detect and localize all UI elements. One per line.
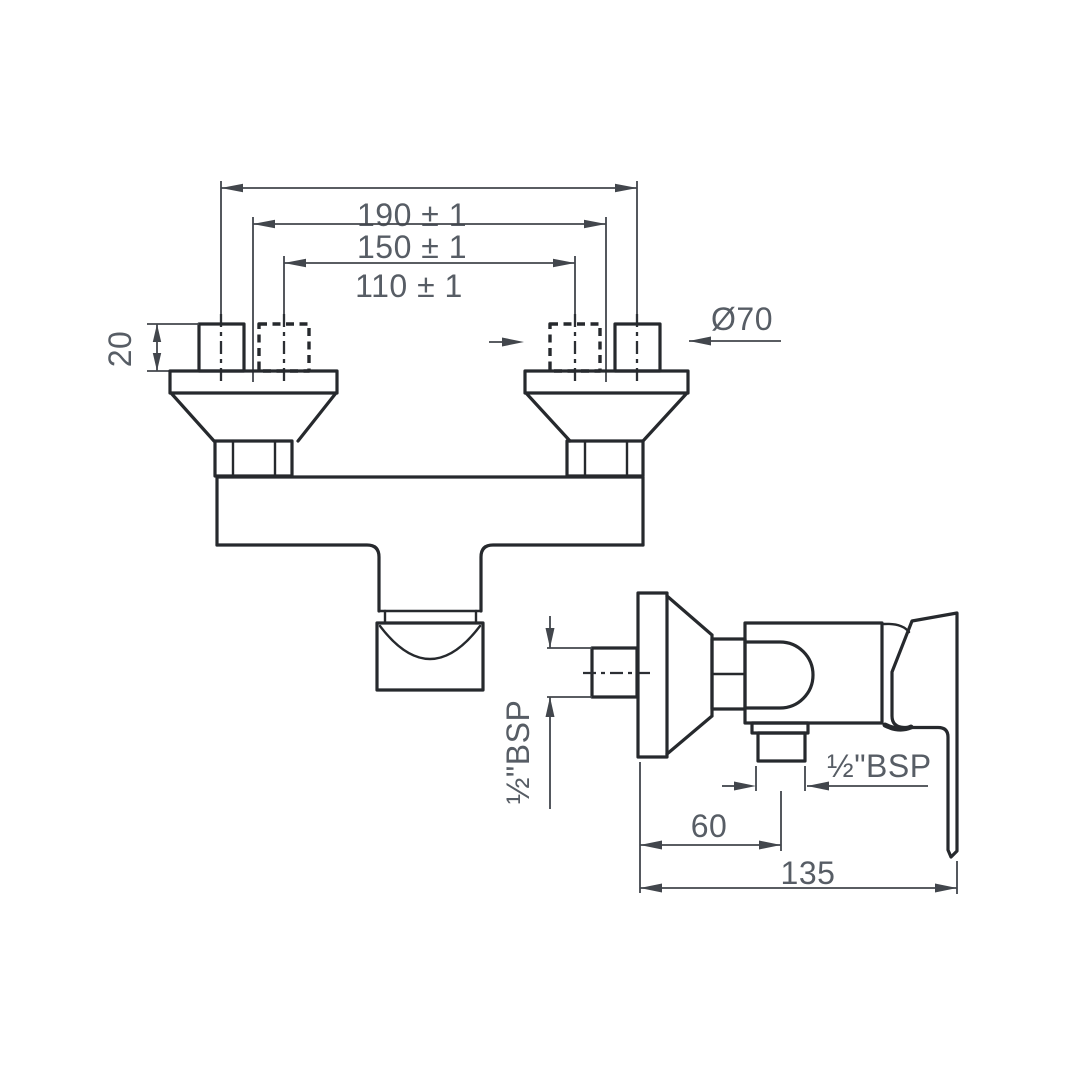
handle-collar-arc	[884, 624, 909, 632]
body-bottom-left-shoulder	[217, 545, 379, 611]
outlet-groove-sides	[385, 611, 476, 623]
dimension-20: 20	[102, 324, 199, 371]
escutcheon-flange-side	[638, 593, 667, 757]
lever-handle	[884, 613, 957, 857]
dim-label-20: 20	[102, 331, 138, 368]
right-escutcheon-cone-right	[643, 393, 687, 441]
left-escutcheon-cone-right	[298, 393, 336, 441]
dim-label-135: 135	[781, 855, 836, 891]
left-escutcheon-cone-left	[171, 393, 214, 441]
front-view-drawing: 190 ± 1 150 ± 1 110 ± 1	[102, 181, 781, 690]
outlet-cup-arc	[380, 626, 480, 659]
technical-drawing-page: 190 ± 1 150 ± 1 110 ± 1	[0, 0, 1080, 1080]
right-hex-nut	[567, 441, 643, 476]
dim-label-diameter-70: Ø70	[711, 301, 773, 337]
dim-label-inlet-bsp: ½"BSP	[500, 700, 536, 805]
side-view-drawing: ½"BSP ½"BSP 60 135	[500, 593, 957, 894]
dim-label-110: 110 ± 1	[355, 268, 463, 304]
left-escutcheon	[170, 371, 337, 476]
dimension-60: 60	[640, 762, 781, 893]
shower-mixer-dimension-drawing: 190 ± 1 150 ± 1 110 ± 1	[0, 0, 1080, 1080]
left-hex-nut	[215, 441, 292, 476]
right-escutcheon-cone-left	[526, 393, 570, 441]
dim-label-outlet-bsp: ½"BSP	[827, 748, 932, 784]
dimension-110: 110 ± 1	[284, 256, 575, 316]
dim-label-60: 60	[691, 808, 728, 844]
dim-label-190: 190 ± 1	[357, 197, 467, 233]
escutcheon-cone-side	[667, 596, 712, 754]
right-hex-nut-flats	[585, 441, 627, 476]
right-escutcheon	[525, 371, 688, 476]
handle-outline	[892, 613, 957, 857]
outlet-pipe-side	[758, 733, 805, 761]
outlet-cup-front	[377, 623, 483, 690]
mixer-body-front	[217, 477, 643, 690]
body-bottom-right-shoulder	[481, 545, 643, 611]
body-bar-outline	[217, 477, 643, 545]
dimension-135: 135	[640, 855, 957, 894]
dim-label-150: 150 ± 1	[357, 229, 467, 265]
dimension-outlet-bsp: ½"BSP	[722, 748, 932, 791]
left-hex-nut-flats	[233, 441, 275, 476]
mixer-body-side	[745, 623, 882, 761]
cartridge-dome	[745, 642, 813, 708]
dimension-inlet-bsp: ½"BSP	[500, 616, 592, 809]
escutcheon-side	[638, 593, 745, 757]
